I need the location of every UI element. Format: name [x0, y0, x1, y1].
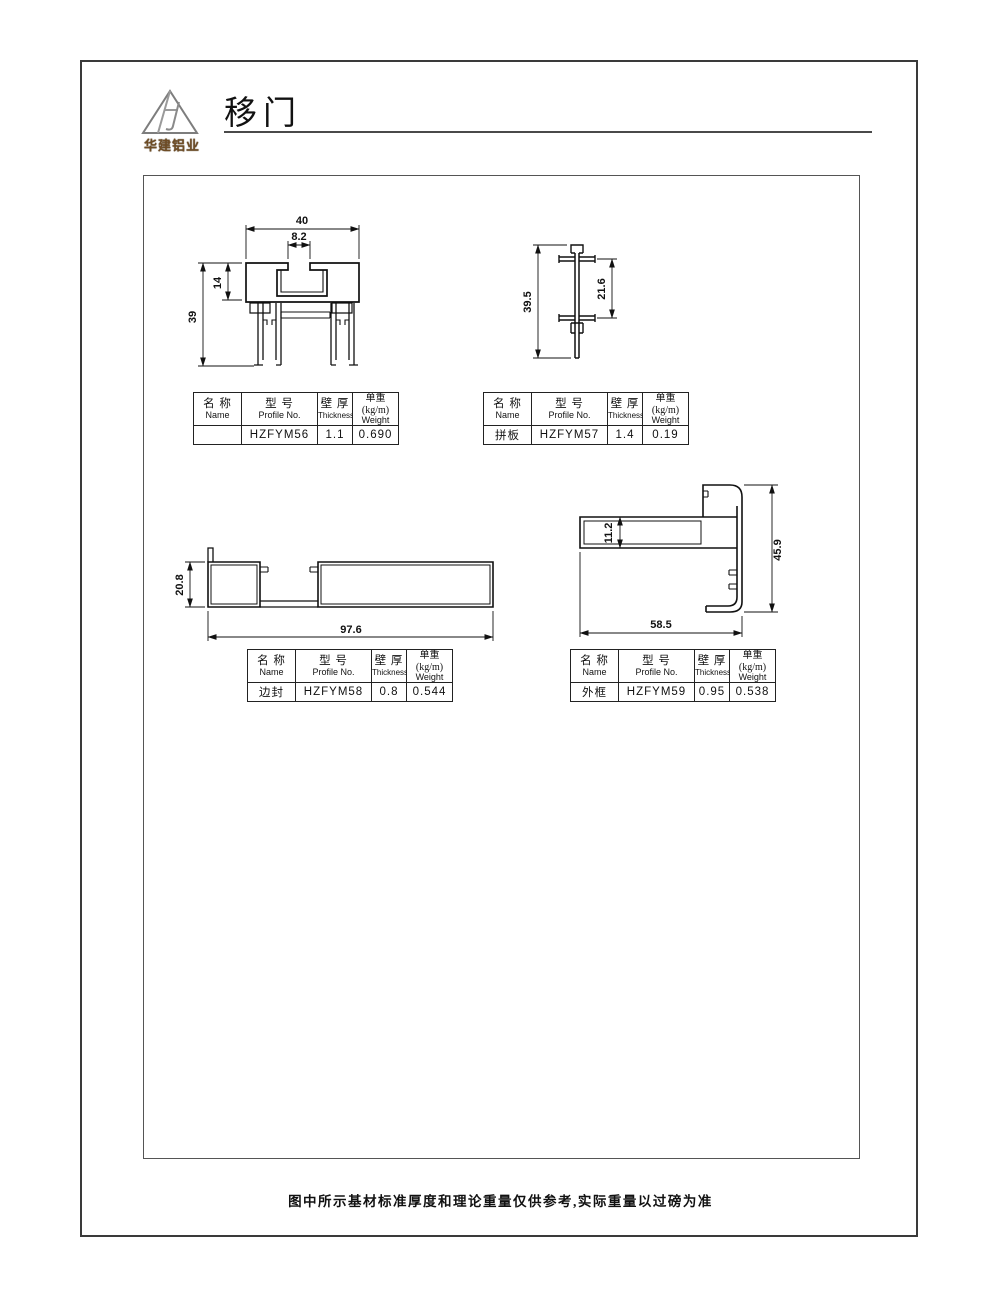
cell-name	[194, 426, 242, 445]
header-name-en: Name	[571, 668, 618, 677]
cell-profile-no: HZFYM59	[619, 683, 695, 702]
dim-height: 20.8	[174, 574, 186, 595]
header-profile-en: Profile No.	[242, 411, 317, 420]
header-weight-cn: 单重(kg/m)	[407, 650, 452, 673]
header-name-en: Name	[194, 411, 241, 420]
profile-drawing-hzfym56: 40 8.2 14 39	[170, 205, 400, 380]
spec-table-hzfym56: 名 称Name 型 号Profile No. 壁 厚Thickness 单重(k…	[193, 392, 399, 445]
cell-thickness: 1.1	[318, 426, 353, 445]
company-logo-icon	[138, 88, 202, 136]
cell-profile-no: HZFYM56	[242, 426, 318, 445]
dimension-lines	[185, 562, 493, 641]
header-thickness-cn: 壁 厚	[372, 655, 406, 668]
header-name-en: Name	[248, 668, 295, 677]
profile-drawing-hzfym59: 11.2 45.9 58.5	[560, 458, 795, 653]
page-title: 移门	[224, 86, 302, 134]
spec-table-hzfym59: 名 称Name 型 号Profile No. 壁 厚Thickness 单重(k…	[570, 649, 776, 702]
header-weight-en: Weight	[353, 416, 398, 425]
header-thickness-cn: 壁 厚	[318, 398, 352, 411]
dim-height: 45.9	[772, 539, 784, 560]
cell-thickness: 1.4	[608, 426, 643, 445]
cell-profile-no: HZFYM58	[296, 683, 372, 702]
header-weight-cn: 单重(kg/m)	[643, 393, 688, 416]
spec-header-row: 名 称Name 型 号Profile No. 壁 厚Thickness 单重(k…	[194, 393, 399, 426]
dim-width: 40	[296, 215, 308, 227]
dim-width: 97.6	[340, 624, 361, 636]
profile-drawing-hzfym57: 39.5 21.6	[505, 212, 690, 377]
profile-outline	[559, 245, 595, 358]
cell-name: 边封	[248, 683, 296, 702]
cell-weight: 0.538	[730, 683, 776, 702]
spec-table-hzfym58: 名 称Name 型 号Profile No. 壁 厚Thickness 单重(k…	[247, 649, 453, 702]
header-thickness-en: Thickness	[695, 669, 729, 677]
cell-profile-no: HZFYM57	[532, 426, 608, 445]
cell-weight: 0.19	[643, 426, 689, 445]
spec-header-row: 名 称Name 型 号Profile No. 壁 厚Thickness 单重(k…	[571, 650, 776, 683]
footer-disclaimer: 图中所示基材标准厚度和理论重量仅供参考,实际重量以过磅为准	[143, 1190, 858, 1210]
dim-width: 58.5	[650, 619, 671, 631]
cell-thickness: 0.8	[372, 683, 407, 702]
spec-value-row: 外框 HZFYM59 0.95 0.538	[571, 683, 776, 702]
dim-height: 39	[187, 311, 199, 323]
header-weight-cn: 单重(kg/m)	[730, 650, 775, 673]
header-weight-en: Weight	[730, 673, 775, 682]
header-weight-en: Weight	[407, 673, 452, 682]
spec-value-row: 边封 HZFYM58 0.8 0.544	[248, 683, 453, 702]
cell-weight: 0.690	[353, 426, 399, 445]
cell-name: 外框	[571, 683, 619, 702]
dim-upper: 14	[212, 276, 224, 289]
dim-mid: 21.6	[596, 278, 608, 299]
company-name: 华建铝业	[130, 135, 214, 154]
header-thickness-cn: 壁 厚	[608, 398, 642, 411]
dimension-lines	[580, 485, 778, 637]
title-underline	[224, 131, 872, 133]
profile-outline	[580, 485, 742, 612]
cell-weight: 0.544	[407, 683, 453, 702]
spec-value-row: HZFYM56 1.1 0.690	[194, 426, 399, 445]
cell-name: 拼板	[484, 426, 532, 445]
header-weight-en: Weight	[643, 416, 688, 425]
header-profile-en: Profile No.	[532, 411, 607, 420]
header-name-en: Name	[484, 411, 531, 420]
spec-table-hzfym57: 名 称Name 型 号Profile No. 壁 厚Thickness 单重(k…	[483, 392, 689, 445]
dim-slot: 8.2	[291, 231, 306, 243]
profile-outline	[208, 548, 493, 607]
profile-drawing-hzfym58: 20.8 97.6	[165, 540, 505, 652]
header-profile-en: Profile No.	[296, 668, 371, 677]
spec-header-row: 名 称Name 型 号Profile No. 壁 厚Thickness 单重(k…	[484, 393, 689, 426]
header-profile-en: Profile No.	[619, 668, 694, 677]
spec-header-row: 名 称Name 型 号Profile No. 壁 厚Thickness 单重(k…	[248, 650, 453, 683]
header-weight-cn: 单重(kg/m)	[353, 393, 398, 416]
dim-inner: 11.2	[603, 523, 615, 544]
header-thickness-en: Thickness	[608, 412, 642, 420]
header-thickness-en: Thickness	[318, 412, 352, 420]
profile-outline	[246, 263, 359, 365]
spec-value-row: 拼板 HZFYM57 1.4 0.19	[484, 426, 689, 445]
cell-thickness: 0.95	[695, 683, 730, 702]
header-thickness-cn: 壁 厚	[695, 655, 729, 668]
dim-height: 39.5	[522, 291, 534, 312]
catalog-page: 华建铝业 移门	[0, 0, 1000, 1294]
header-thickness-en: Thickness	[372, 669, 406, 677]
